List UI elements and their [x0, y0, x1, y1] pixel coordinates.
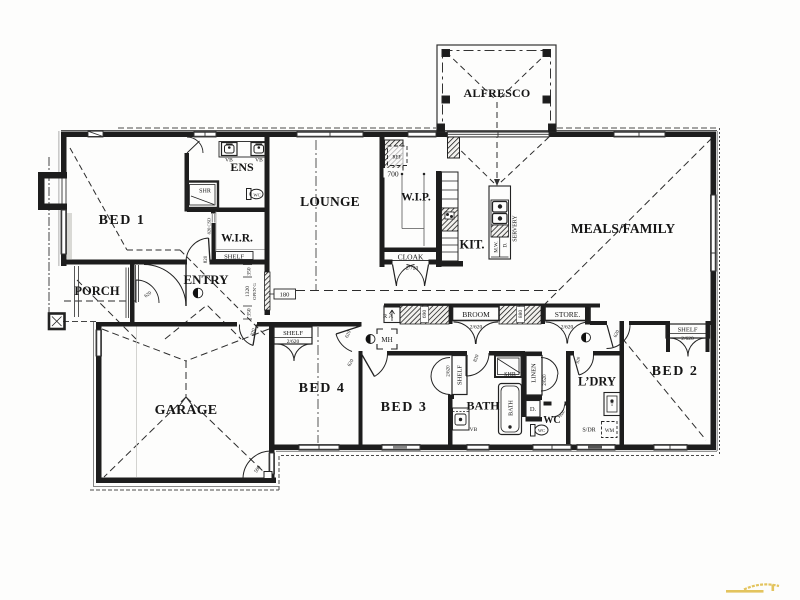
svg-text:CLOAK: CLOAK [398, 253, 424, 262]
svg-text:WC: WC [543, 415, 560, 426]
svg-text:VB: VB [225, 158, 233, 164]
svg-text:D.: D. [504, 243, 509, 248]
svg-text:STORE.: STORE. [555, 310, 581, 319]
svg-text:ENTRY: ENTRY [183, 272, 229, 287]
svg-text:LINEN: LINEN [531, 363, 538, 383]
svg-text:SHELF: SHELF [457, 365, 464, 385]
svg-text:820: 820 [204, 255, 209, 263]
svg-text:T: T [610, 403, 613, 408]
svg-text:2/620: 2/620 [470, 325, 483, 331]
svg-text:W.I.R.: W.I.R. [221, 233, 253, 245]
svg-text:2/620: 2/620 [681, 336, 694, 342]
svg-text:BATH: BATH [509, 400, 515, 416]
svg-text:BROOM: BROOM [462, 310, 490, 319]
svg-text:MEALS/FAMILY: MEALS/FAMILY [571, 221, 676, 236]
svg-text:LOUNGE: LOUNGE [300, 194, 360, 209]
svg-text:KIT.: KIT. [459, 238, 484, 252]
svg-text:BATH: BATH [466, 399, 500, 413]
svg-text:BED 2: BED 2 [652, 364, 699, 379]
svg-text:SERVERY: SERVERY [513, 215, 519, 242]
svg-text:2/720: 2/720 [406, 266, 419, 272]
svg-text:2/620: 2/620 [447, 365, 452, 377]
svg-text:ENS: ENS [230, 160, 254, 174]
svg-text:MH: MH [381, 336, 392, 344]
svg-text:WC: WC [253, 193, 260, 198]
svg-text:2/620: 2/620 [561, 325, 574, 331]
svg-text:SHELF: SHELF [283, 330, 303, 337]
svg-text:SHR: SHR [199, 189, 211, 195]
svg-text:M.W.: M.W. [495, 241, 500, 252]
svg-text:820 CSD: 820 CSD [207, 217, 212, 234]
svg-text:880: 880 [518, 310, 524, 319]
svg-text:D.: D. [530, 406, 537, 413]
svg-text:BED 1: BED 1 [99, 213, 146, 228]
svg-text:REF: REF [392, 156, 401, 161]
svg-text:VB: VB [255, 158, 263, 164]
svg-text:VB: VB [470, 427, 478, 433]
svg-text:OPEN’G: OPEN’G [252, 283, 257, 300]
svg-text:WC: WC [538, 428, 545, 433]
svg-text:700: 700 [387, 170, 399, 179]
svg-text:L’DRY: L’DRY [578, 375, 616, 389]
svg-text:350: 350 [247, 308, 253, 317]
svg-text:BED 4: BED 4 [299, 381, 346, 396]
svg-text:350: 350 [247, 267, 253, 276]
svg-text:BED 3: BED 3 [381, 400, 428, 415]
svg-text:PORCH: PORCH [74, 284, 119, 298]
svg-text:SHELF: SHELF [678, 327, 698, 334]
svg-text:ALFRESCO: ALFRESCO [464, 86, 531, 100]
svg-text:690: 690 [422, 310, 428, 319]
svg-text:1320: 1320 [245, 286, 251, 297]
svg-text:2/620: 2/620 [287, 339, 300, 345]
svg-text:SHR: SHR [504, 372, 516, 378]
svg-text:180: 180 [280, 292, 290, 299]
svg-text:WM: WM [605, 429, 615, 434]
svg-text:2/620: 2/620 [543, 374, 548, 386]
svg-text:W.I.P.: W.I.P. [401, 192, 431, 204]
svg-text:R A: R A [383, 313, 394, 320]
svg-text:S/DR: S/DR [582, 428, 595, 434]
svg-text:GARAGE: GARAGE [155, 403, 218, 418]
svg-text:SHELF: SHELF [224, 254, 244, 261]
